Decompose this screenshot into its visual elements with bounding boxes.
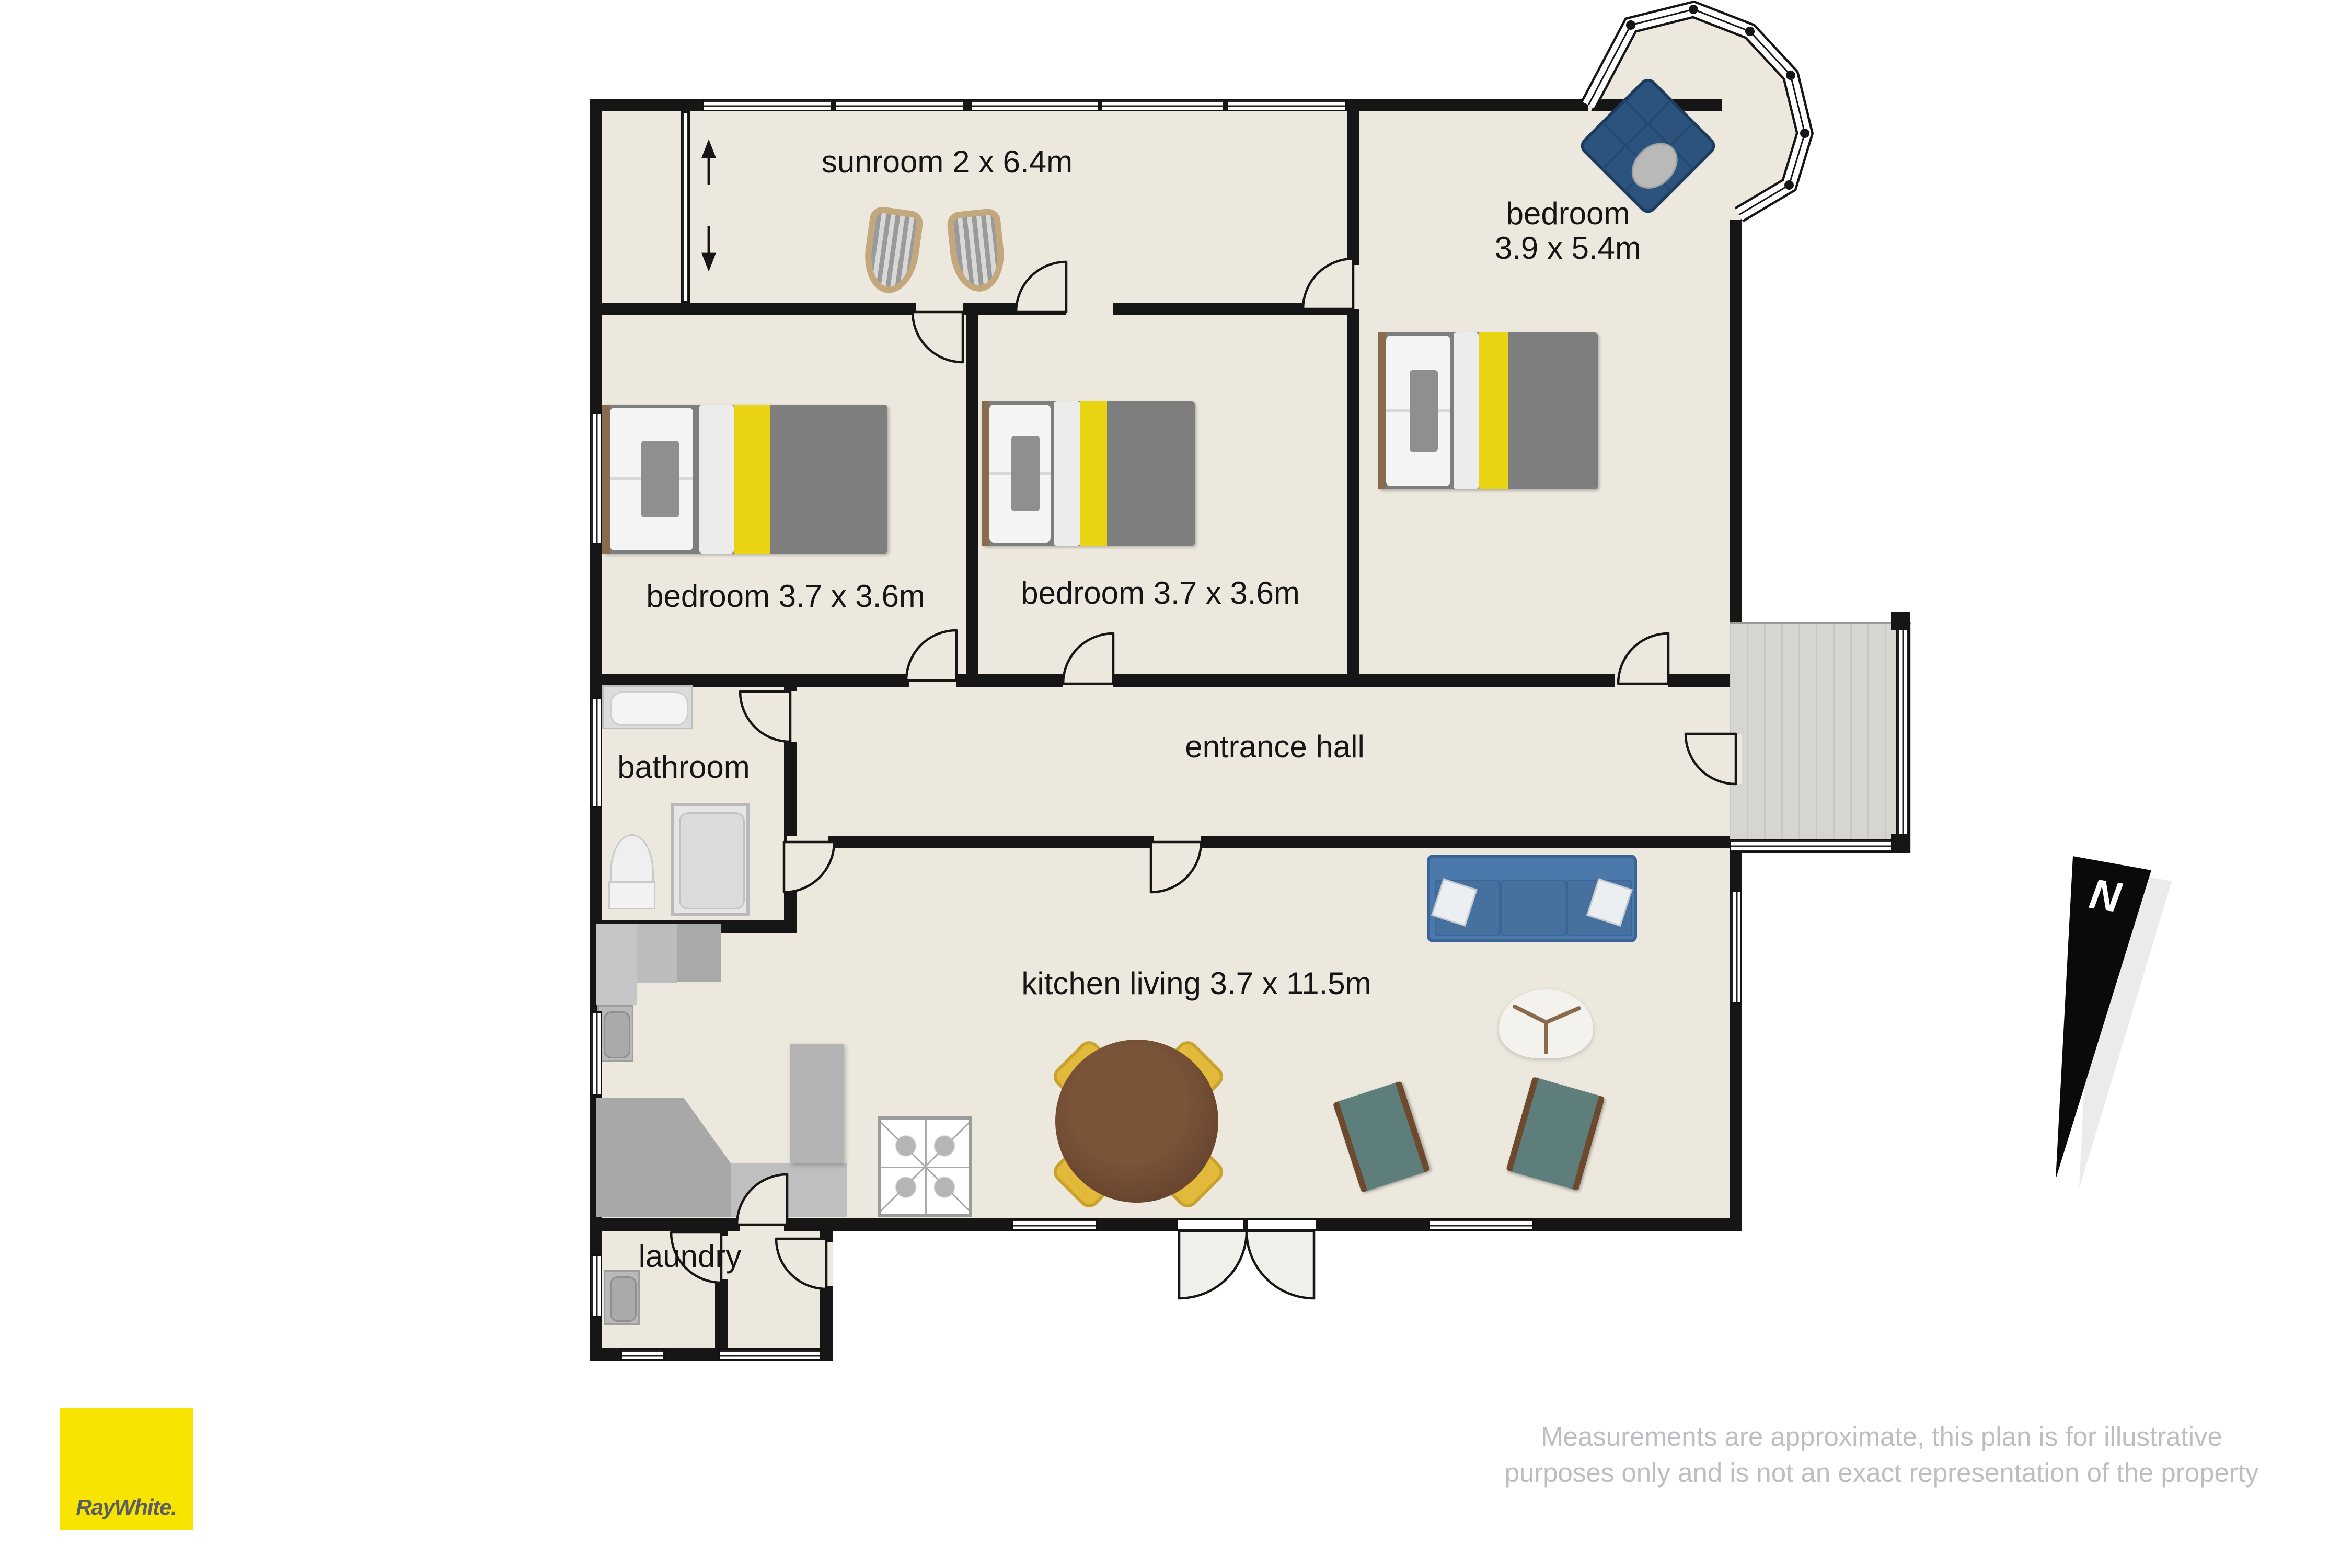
- partition-arrows: [704, 143, 714, 268]
- disclaimer: Measurements are approximate, this plan …: [1474, 1419, 2289, 1493]
- floor-plan-page: N sunroom 2 x 6.4m bedroom 3.9 x 5.4m be…: [0, 0, 2352, 1568]
- door-hall-bedroom-left: [906, 630, 956, 681]
- raywhite-logo-text: RayWhite.: [60, 1494, 193, 1519]
- label-kitchen-living: kitchen living 3.7 x 11.5m: [1000, 967, 1392, 1004]
- doors: [671, 259, 1736, 1289]
- door-sunroom-bedroom-middle: [1016, 262, 1066, 312]
- door-kitchen-porch: [737, 1174, 787, 1225]
- french-door-left: [1179, 1231, 1247, 1298]
- plan-linework: N: [0, 0, 2352, 1568]
- label-sunroom: sunroom 2 x 6.4m: [751, 146, 1143, 182]
- label-bedroom-main: bedroom 3.9 x 5.4m: [1443, 198, 1693, 267]
- door-porch: [776, 1239, 826, 1289]
- door-hall-kitchen: [784, 842, 834, 892]
- door-hall-deck: [1686, 734, 1736, 784]
- door-hall-living: [1151, 842, 1201, 892]
- label-bathroom: bathroom: [613, 751, 754, 787]
- label-laundry: laundry: [619, 1240, 760, 1276]
- label-entrance-hall: entrance hall: [1142, 731, 1408, 767]
- label-bedroom-left: bedroom 3.7 x 3.6m: [621, 580, 950, 616]
- raywhite-logo: RayWhite.: [60, 1408, 193, 1530]
- disclaimer-line2: purposes only and is not an exact repres…: [1474, 1456, 2289, 1492]
- french-door-right: [1247, 1231, 1314, 1298]
- label-bedroom-main-line2: 3.9 x 5.4m: [1443, 232, 1693, 267]
- label-bedroom-middle: bedroom 3.7 x 3.6m: [1004, 577, 1317, 613]
- label-bedroom-main-line1: bedroom: [1443, 198, 1693, 232]
- door-bathroom: [740, 691, 790, 742]
- door-hall-bedroom-main: [1618, 633, 1668, 684]
- french-doors: [1179, 1231, 1314, 1298]
- door-hall-bedroom-middle: [1063, 633, 1113, 684]
- disclaimer-line1: Measurements are approximate, this plan …: [1474, 1419, 2289, 1456]
- door-sunroom-bedroom-main: [1303, 259, 1353, 309]
- door-sunroom-bedroom-left: [913, 312, 963, 362]
- coffee-table-legs: [1515, 1007, 1579, 1052]
